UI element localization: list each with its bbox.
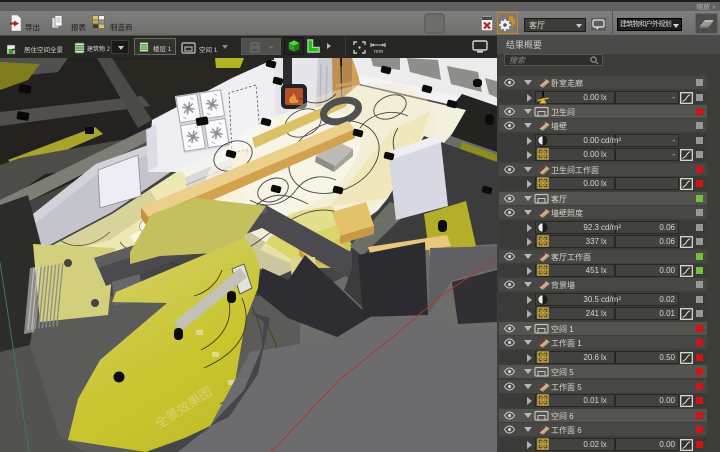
svg-text:mm: mm	[374, 49, 384, 54]
